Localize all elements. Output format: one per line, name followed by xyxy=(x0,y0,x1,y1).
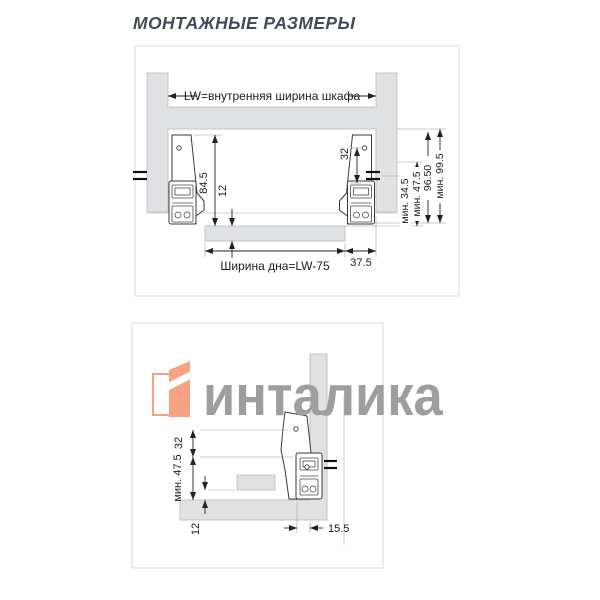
intalika-logo-bar xyxy=(169,361,190,417)
dim-inner-width: LW=внутренняя ширина шкафа xyxy=(168,89,376,103)
dim-37-5-label: 37.5 xyxy=(350,257,371,269)
dim-min-99-5-label: мин. 99.5 xyxy=(434,153,446,198)
mounting-dimensions-page: МОНТАЖНЫЕ РАЗМЕРЫ LW=внутренняя ширина ш… xyxy=(0,0,600,600)
dim-32-top-label: 32 xyxy=(339,148,351,160)
dim-84-5-label: 84.5 xyxy=(198,172,210,193)
intalika-logo-slash xyxy=(169,370,190,391)
dim-96-50-label: 96.50 xyxy=(422,165,434,191)
watermark-brand: инталика xyxy=(203,368,443,425)
dim-15-5-label: 15.5 xyxy=(328,523,349,535)
bottom-diagram: 32 мин. 47.5 12 15.5 xyxy=(132,323,383,568)
dim-min-34-5-label: мин. 34.5 xyxy=(399,178,411,223)
drawer-bottom-panel xyxy=(205,226,345,241)
top-diagram: LW=внутренняя ширина шкафа xyxy=(133,46,459,296)
drawer-bottom-panel-side xyxy=(237,475,275,490)
bottom-width-label: Ширина дна=LW-75 xyxy=(220,259,330,273)
dim-min-47-5-bottom-label: мин. 47.5 xyxy=(172,454,184,501)
dim-12-top-label: 12 xyxy=(217,185,229,197)
inner-width-label: LW=внутренняя ширина шкафа xyxy=(184,89,361,103)
dim-32-bottom-label: 32 xyxy=(173,437,185,449)
dim-12-bottom-label: 12 xyxy=(190,523,202,535)
drawings-svg: LW=внутренняя ширина шкафа xyxy=(0,0,600,600)
